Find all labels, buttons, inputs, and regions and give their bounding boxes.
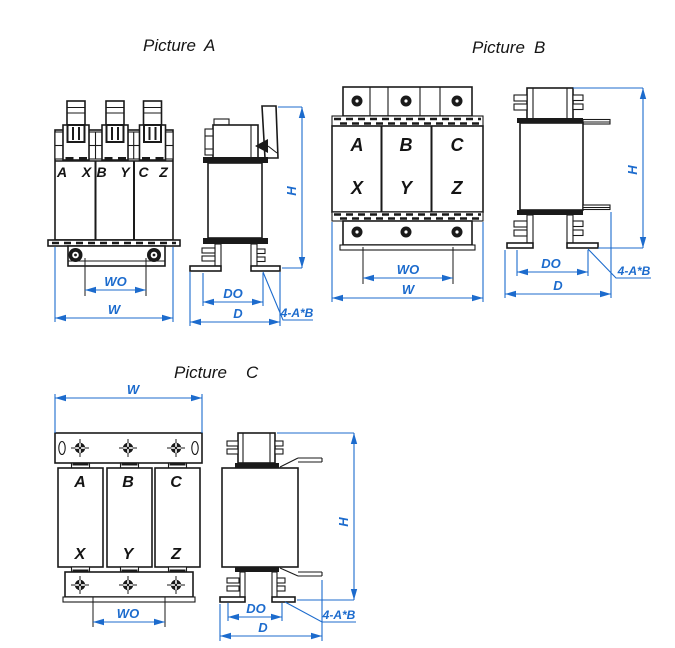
dim-label-d: D [553,278,563,293]
bottom-plate-lip [63,597,195,602]
picture-b: Picture B A B C X Y Z [332,38,651,302]
dim-label-holes: 4-A*B [322,608,356,622]
terminal-tab [205,129,213,155]
terminal-block [63,101,89,161]
phase-label: X [350,178,364,198]
dim-label-do: DO [246,601,266,616]
terminal-step [214,119,229,125]
dim-label-do: DO [223,286,243,301]
dimension-h: H [278,107,302,268]
terminal-label: B [96,164,106,180]
dimension-wo: WO [93,606,165,622]
reactor-dimension-drawing: Picture A [0,0,675,648]
bottom-bracket-lip [340,245,475,250]
terminal-tab [280,568,322,576]
side-bolt [275,441,283,446]
dimension-wo: WO [363,262,453,278]
side-bolt [202,248,215,253]
bracket-plate [567,215,573,243]
foot [272,597,295,602]
picture-b-front-view: A B C X Y Z [332,87,483,284]
top-clamp-flange [203,157,268,163]
coil-body-side [208,163,262,238]
terminal-label: Z [158,164,168,180]
picture-c-front-view: A B C X Y Z [55,433,202,627]
side-bolt [227,586,239,591]
bottom-clamp-flange [203,238,268,244]
terminal-block [140,101,166,161]
dimension-wo: WO [85,274,146,290]
terminal-block [102,101,128,161]
side-bolt [227,449,238,454]
dimension-do: DO [203,273,263,306]
phase-label: Z [451,178,464,198]
picture-a-title-word: Picture [143,36,196,55]
bracket-plate [527,215,533,243]
side-bolt [573,221,583,227]
dim-label-w: W [402,282,416,297]
bottom-flange [235,567,279,572]
phase-label: Y [123,546,135,563]
side-bolt [202,256,215,261]
top-clamp-side [527,88,573,120]
bracket-plate [215,244,221,266]
terminal-label: X [81,164,93,180]
phase-label: C [170,474,182,491]
dimension-holes: 4-A*B [263,272,314,320]
bracket-bolt [401,96,412,107]
picture-b-title-letter: B [534,38,545,57]
dim-label-holes: 4-A*B [280,306,314,320]
bracket-plate [240,572,245,597]
side-bolt [227,441,238,446]
side-bolt [277,578,285,583]
coil-body-side [222,468,298,567]
picture-c-title: Picture C [174,363,259,382]
picture-c-side-view [220,433,322,602]
phase-label: A [350,135,364,155]
side-bolt [227,578,239,583]
drawing-sheet: Picture A [0,0,675,648]
bracket-bolt [452,96,463,107]
bracket-plate [272,572,277,597]
phase-label: B [122,474,134,491]
side-bolt [573,104,583,110]
picture-a-title: Picture A [143,36,215,55]
dim-label-wo: WO [117,606,139,621]
phase-label: Z [170,546,182,563]
coil-body-side [520,123,583,210]
foot [567,243,598,248]
side-bolt [514,95,527,101]
phase-label: Y [400,178,414,198]
terminal-tab [280,458,322,467]
dim-label-holes: 4-A*B [617,264,651,278]
mounting-bolt [69,248,83,262]
side-bolt [573,230,583,236]
side-bolt [277,586,285,591]
picture-b-side-view [507,88,610,248]
picture-a: Picture A [48,36,314,326]
side-bolt [573,95,583,101]
picture-c-title-word: Picture [174,363,227,382]
picture-c-title-letter: C [246,363,259,382]
phase-label: B [400,135,413,155]
dim-label-d: D [258,620,268,635]
picture-b-title-word: Picture [472,38,525,57]
phase-label: X [74,546,87,563]
bracket-bolt [352,96,363,107]
dim-label-h: H [284,186,299,196]
dimension-do: DO [228,601,282,621]
foot [251,266,280,271]
dimension-w: W [55,382,202,433]
terminal-label: C [138,164,149,180]
side-bolt [257,257,265,262]
picture-c: Picture C [55,363,356,641]
dimension-do: DO [517,250,588,276]
picture-a-title-letter: A [203,36,215,55]
phase-label: A [73,474,86,491]
mounting-bolt [147,248,161,262]
picture-a-side-view [190,106,280,271]
side-bolt [257,249,265,254]
bracket-bolt [401,227,412,238]
bracket-bolt [452,227,463,238]
bottom-flange [517,210,583,215]
dim-label-h: H [336,517,351,527]
picture-a-front-view: A X B Y C Z [48,101,180,296]
terminal-label: A [56,164,67,180]
picture-b-title: Picture B [472,38,545,57]
dim-label-d: D [233,306,243,321]
bracket-bolt [352,227,363,238]
dimension-holes: 4-A*B [588,249,651,278]
foot [190,266,221,271]
side-bolt [275,449,283,454]
dim-label-wo: WO [397,262,419,277]
dim-label-do: DO [541,256,561,271]
side-bolt [514,104,527,110]
dimension-holes: 4-A*B [285,602,356,622]
bracket-plate [251,244,257,266]
side-bolt [514,221,527,227]
dim-label-w: W [108,302,122,317]
dim-label-h: H [625,165,640,175]
side-bolt [514,230,527,236]
foot [220,597,245,602]
phase-label: C [451,135,465,155]
foot [507,243,533,248]
dim-label-wo: WO [104,274,126,289]
dim-label-w: W [127,382,141,397]
